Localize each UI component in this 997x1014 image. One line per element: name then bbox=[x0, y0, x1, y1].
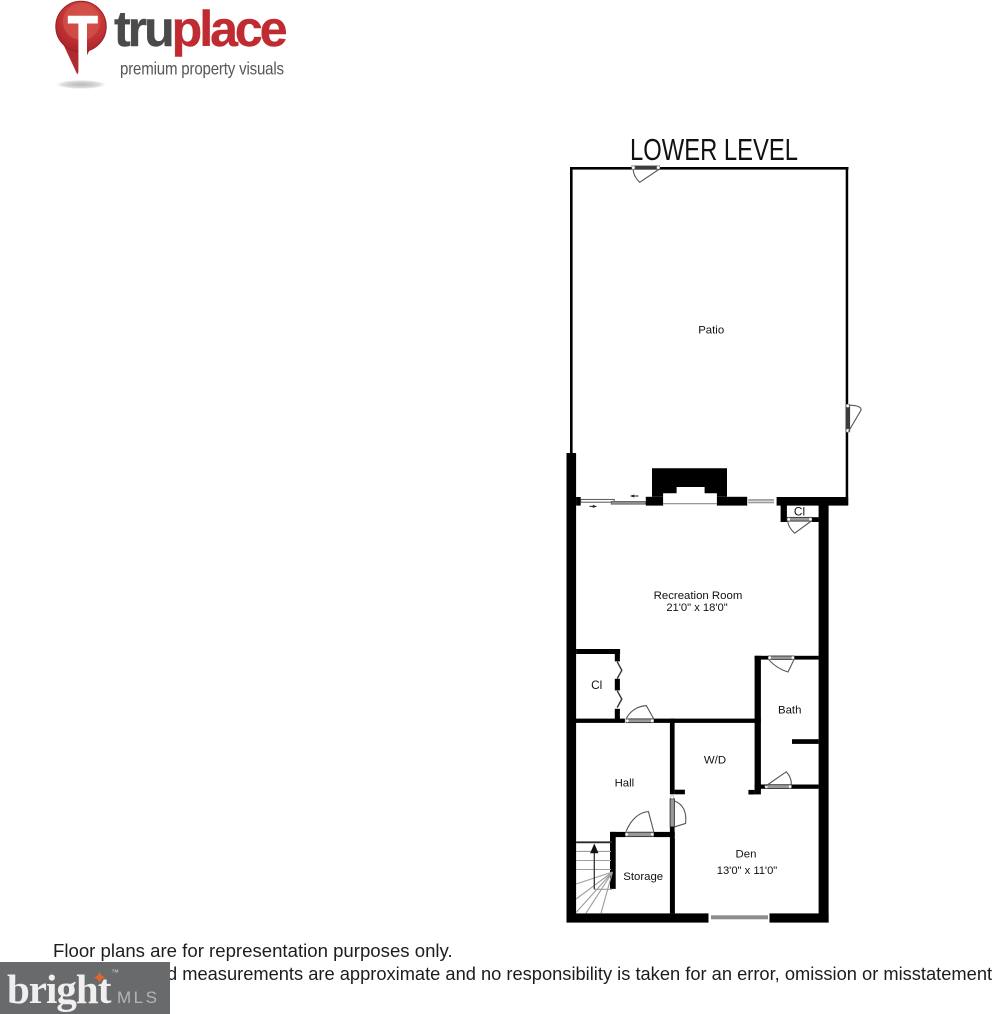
svg-text:Cl: Cl bbox=[794, 504, 805, 518]
svg-text:Den: Den bbox=[736, 849, 757, 861]
svg-text:Patio: Patio bbox=[698, 325, 724, 337]
svg-text:Recreation Room: Recreation Room bbox=[654, 590, 743, 602]
svg-text:Bath: Bath bbox=[778, 704, 801, 716]
svg-text:21'0" x 18'0": 21'0" x 18'0" bbox=[666, 602, 727, 614]
svg-text:Storage: Storage bbox=[623, 871, 663, 883]
svg-text:13'0" x 11'0": 13'0" x 11'0" bbox=[717, 865, 778, 877]
svg-text:Cl: Cl bbox=[591, 678, 602, 692]
svg-text:Hall: Hall bbox=[615, 778, 635, 790]
svg-text:W/D: W/D bbox=[704, 755, 726, 767]
